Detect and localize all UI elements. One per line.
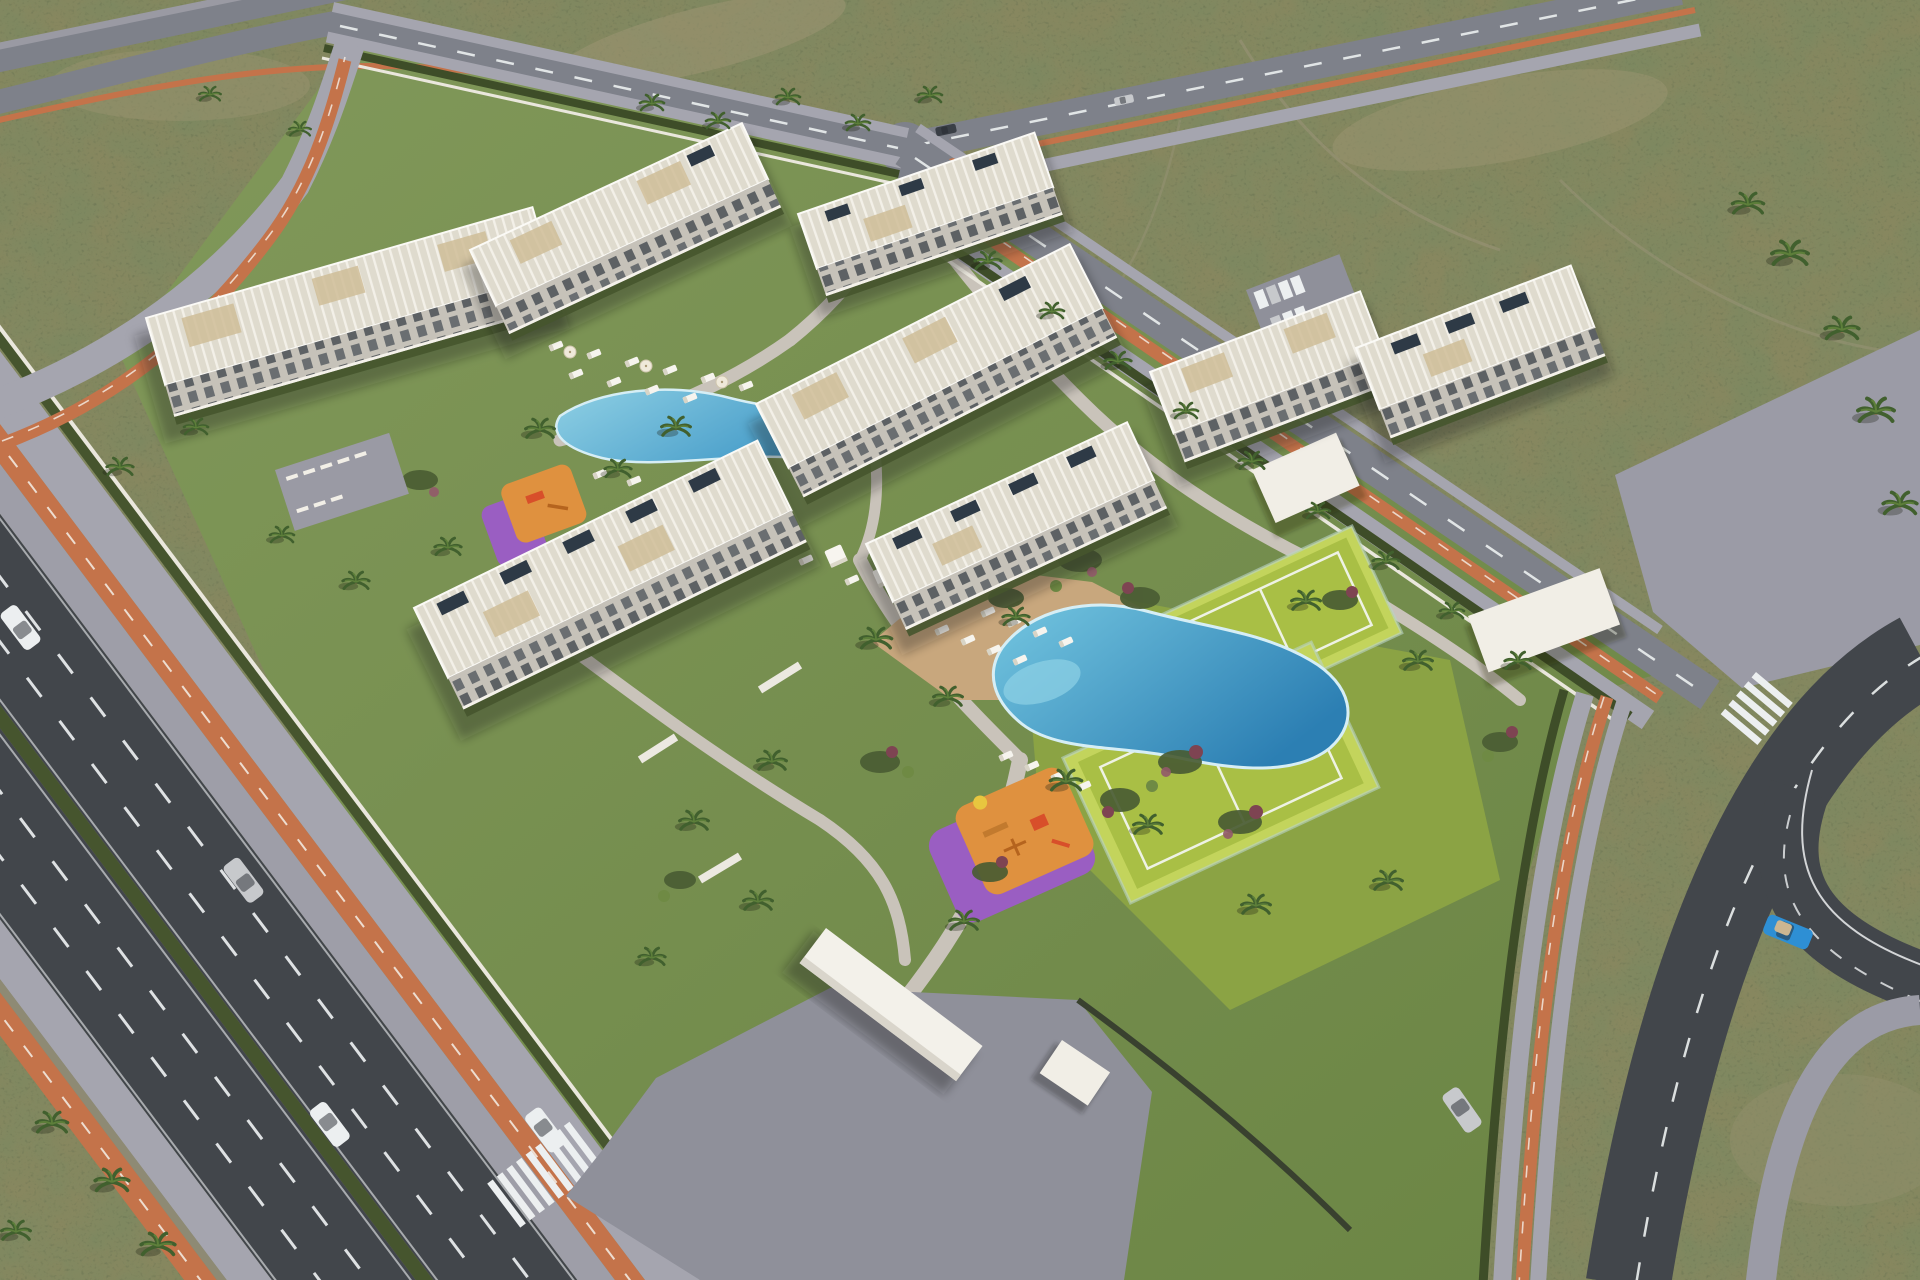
shrub [1482,750,1494,762]
parasol [716,376,728,388]
flower-shrub [1223,829,1233,839]
flower-shrub [1122,582,1134,594]
shrub [902,766,914,778]
parasol [640,360,652,372]
flower-shrub [429,487,439,497]
flower-shrub [1249,805,1263,819]
flower-shrub [1346,586,1358,598]
shrub-bed [402,470,438,490]
flower-shrub [996,856,1008,868]
parasol [564,346,576,358]
flower-shrub [1102,806,1114,818]
aerial-render-canvas [0,0,1920,1280]
flower-shrub [886,746,898,758]
shrub [658,890,670,902]
shrub [1146,780,1158,792]
resort-aerial-scene [0,0,1920,1280]
flower-shrub [1189,745,1203,759]
shrub-bed [664,871,696,889]
flower-shrub [1161,767,1171,777]
flower-shrub [1087,567,1097,577]
flower-shrub [1506,726,1518,738]
